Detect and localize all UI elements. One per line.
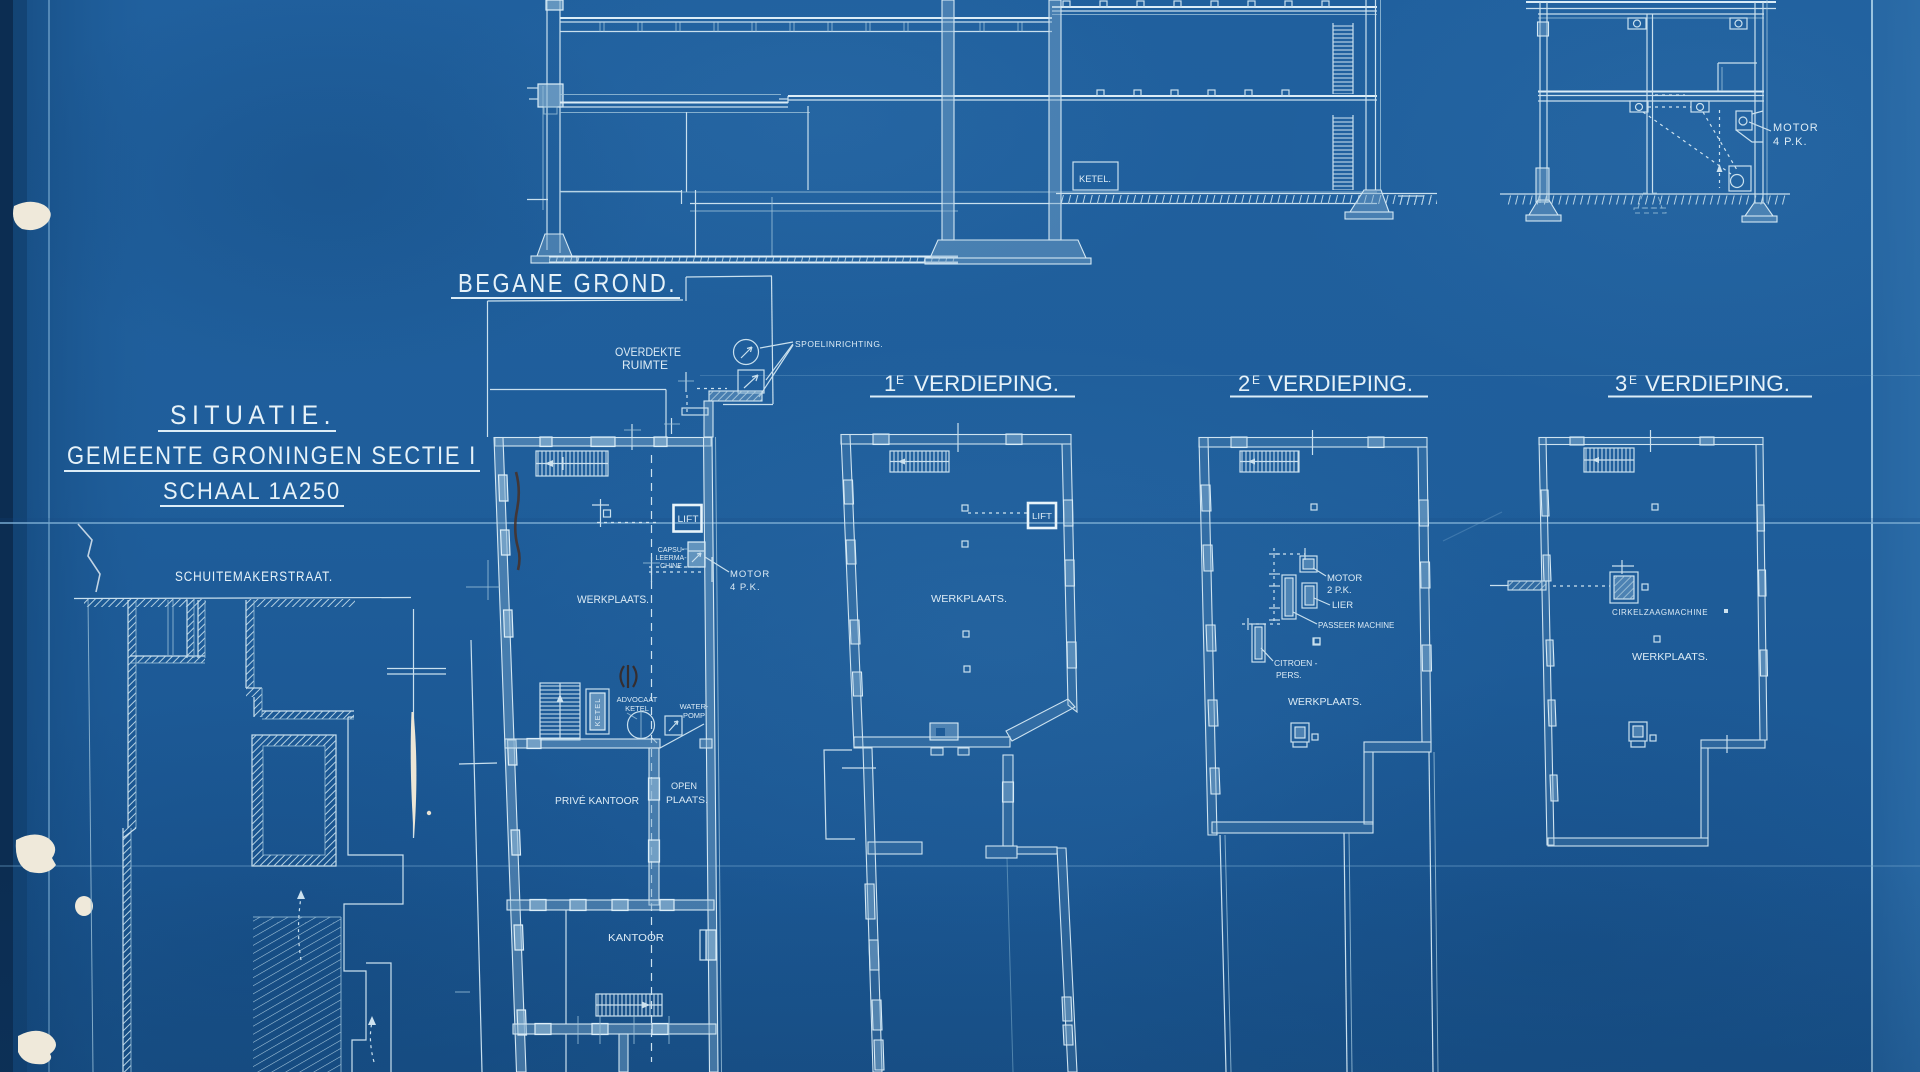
svg-text:E: E	[1629, 373, 1637, 387]
svg-text:SPOELINRICHTING.: SPOELINRICHTING.	[795, 339, 883, 349]
svg-text:POMP: POMP	[683, 711, 705, 720]
svg-text:3: 3	[1615, 371, 1627, 396]
svg-text:BEGANE GROND.: BEGANE GROND.	[458, 268, 677, 298]
svg-text:PASSEER MACHINE: PASSEER MACHINE	[1318, 621, 1394, 630]
svg-text:PLAATS.: PLAATS.	[666, 795, 708, 806]
svg-text:2: 2	[1238, 371, 1250, 396]
svg-text:KETEL: KETEL	[593, 698, 602, 727]
svg-text:SITUATIE.: SITUATIE.	[170, 400, 336, 430]
svg-text:MOTOR: MOTOR	[1773, 122, 1819, 134]
svg-text:ADVOCAAT: ADVOCAAT	[617, 695, 658, 704]
svg-text:GEMEENTE GRONINGEN SECTIE I: GEMEENTE GRONINGEN SECTIE I	[67, 442, 477, 470]
svg-text:WERKPLAATS.: WERKPLAATS.	[577, 594, 649, 606]
svg-text:LIER: LIER	[1332, 600, 1353, 611]
svg-text:4 P.K.: 4 P.K.	[1773, 136, 1808, 148]
svg-text:LEERMA-: LEERMA-	[655, 555, 687, 562]
svg-text:PERS.: PERS.	[1276, 670, 1302, 680]
svg-text:CITROEN -: CITROEN -	[1274, 658, 1318, 668]
svg-text:VERDIEPING.: VERDIEPING.	[1268, 371, 1413, 396]
svg-text:WATER-: WATER-	[680, 702, 709, 711]
svg-text:E: E	[896, 373, 904, 387]
svg-text:LIFT: LIFT	[1032, 511, 1052, 521]
svg-text:RUIMTE: RUIMTE	[622, 358, 668, 372]
svg-text:PRIVÉ KANTOOR: PRIVÉ KANTOOR	[555, 794, 639, 807]
svg-text:WERKPLAATS.: WERKPLAATS.	[1288, 696, 1362, 708]
svg-text:KANTOOR: KANTOOR	[608, 932, 664, 944]
svg-text:1: 1	[884, 371, 896, 396]
svg-text:E: E	[1252, 373, 1260, 387]
svg-text:4 P.K.: 4 P.K.	[730, 582, 761, 593]
svg-text:WERKPLAATS.: WERKPLAATS.	[1632, 651, 1708, 663]
svg-text:2 P.K.: 2 P.K.	[1327, 585, 1352, 596]
svg-text:SCHAAL 1A250: SCHAAL 1A250	[163, 478, 341, 505]
svg-text:LIFT: LIFT	[678, 514, 700, 524]
svg-text:CAPSU-: CAPSU-	[658, 547, 685, 554]
svg-text:VERDIEPING.: VERDIEPING.	[914, 371, 1059, 396]
svg-text:MOTOR: MOTOR	[730, 569, 770, 580]
svg-text:OPEN: OPEN	[671, 781, 697, 792]
svg-text:KETEL.: KETEL.	[1079, 174, 1111, 184]
svg-text:MOTOR: MOTOR	[1327, 573, 1362, 584]
svg-text:OVERDEKTE: OVERDEKTE	[615, 345, 681, 359]
svg-text:WERKPLAATS.: WERKPLAATS.	[931, 593, 1007, 605]
svg-text:VERDIEPING.: VERDIEPING.	[1645, 371, 1790, 396]
svg-text:CIRKELZAAGMACHINE: CIRKELZAAGMACHINE	[1612, 608, 1708, 617]
svg-text:SCHUITEMAKERSTRAAT.: SCHUITEMAKERSTRAAT.	[175, 569, 333, 584]
